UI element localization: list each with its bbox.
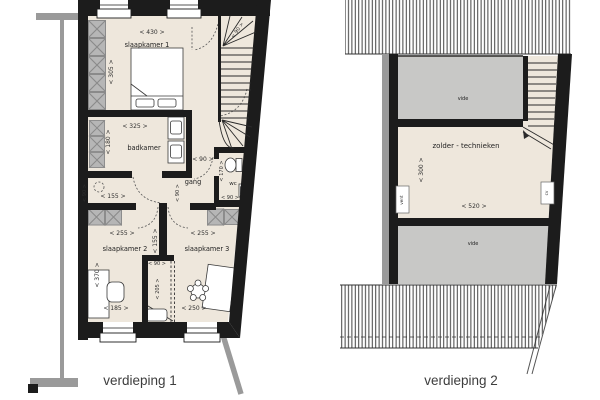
floor1-dim-bedroom2-depth: < 370 >: [94, 262, 101, 287]
floor2-room-label-attic: zolder - technieken: [432, 142, 499, 150]
floor1-room-label-bedroom1: slaapkamer 1: [125, 41, 170, 49]
floor1-dim-hall-width: < 90 >: [192, 156, 214, 163]
floor2-roof-top: [345, 0, 571, 54]
floor1-plan: slaapkamer 1 < 430 > < 305 > < 90 > < 32…: [28, 0, 271, 394]
floor1-room-label-hall: gang: [185, 178, 202, 186]
floor2-void-top-label: vide: [458, 96, 469, 102]
floorplan-page: slaapkamer 1 < 430 > < 305 > < 90 > < 32…: [0, 0, 600, 400]
bed-icon: [131, 48, 183, 110]
floor1-dim-hall-depth: < 90 >: [175, 184, 181, 202]
floor1-caption: verdieping 1: [103, 373, 177, 388]
floor1-room-label-bedroom3: slaapkamer 3: [185, 245, 230, 253]
cv-label: cv: [544, 190, 549, 195]
floor2-neighbor-strip: [382, 54, 389, 284]
cv-unit: cv: [541, 182, 554, 204]
vent-label: vent: [399, 195, 404, 205]
vent-unit: vent: [396, 186, 409, 213]
toilet-icon: [225, 158, 242, 172]
floor1-dim-bedroom3-width: < 255 >: [190, 230, 215, 237]
floor2-void-bottom-label: vide: [468, 241, 479, 247]
floor2-caption: verdieping 2: [424, 373, 498, 388]
floor2-void-bottom: [398, 226, 550, 284]
floor1-dim-center-clearance: < 155 >: [152, 228, 159, 253]
floor1-room-label-bedroom2: slaapkamer 2: [103, 245, 148, 253]
floor1-dim-closet-depth: < 205 >: [155, 278, 161, 299]
floor1-dim-bathroom-depth: < 180 >: [105, 129, 112, 154]
floor2-dim-attic-depth: < 300 >: [418, 157, 425, 182]
floor2-void-top: [398, 57, 523, 119]
floor1-room-label-wc: wc: [229, 181, 237, 187]
floor2-plan: vent cv vide zolder - technieken < 300 >…: [340, 0, 572, 388]
floor2-dim-attic-width: < 520 >: [461, 203, 486, 210]
floor1-dim-bathroom-width: < 325 >: [122, 123, 147, 130]
floor1-dim-closet-width: < 90 >: [148, 261, 166, 267]
floor1-dim-bedroom2-width: < 255 >: [109, 230, 134, 237]
floorplan-canvas: slaapkamer 1 < 430 > < 305 > < 90 > < 32…: [0, 0, 600, 400]
floor1-dim-bedroom1-width: < 430 >: [139, 29, 164, 36]
floor1-dim-bedroom3-bottom-width: < 250 >: [181, 305, 206, 312]
floor1-dim-bedroom2-bottom-width: < 185 >: [103, 305, 128, 312]
floor1-room-label-bathroom: badkamer: [127, 144, 161, 152]
floor1-dim-wc-depth: < 170 >: [219, 160, 225, 181]
floor2-roof-bottom: [340, 285, 557, 348]
floor1-dim-landing-depth: < 90 >: [82, 184, 88, 202]
floor1-dim-landing-width: < 155 >: [100, 193, 125, 200]
floor1-dim-bedroom1-depth: < 305 >: [108, 59, 115, 84]
floor1-dim-wc-width: < 90 >: [221, 195, 239, 201]
